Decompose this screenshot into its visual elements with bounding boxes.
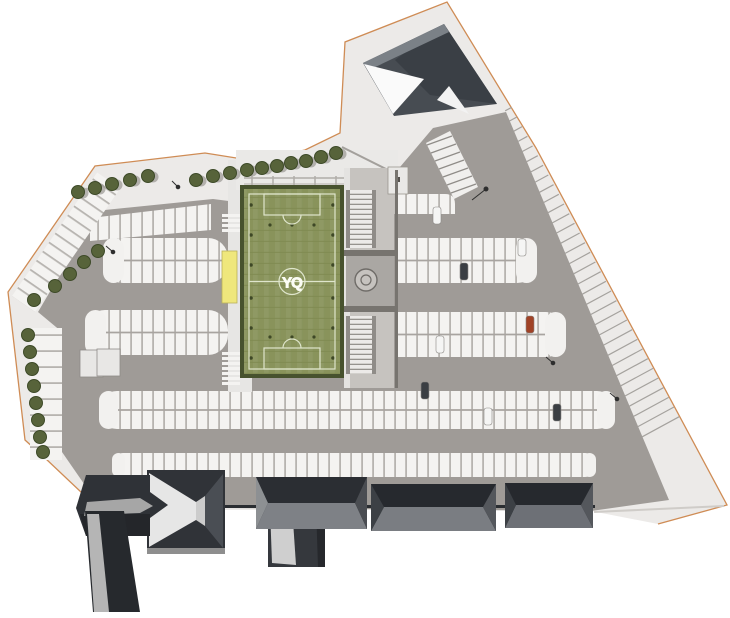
svg-text:YQ: YQ — [282, 275, 303, 292]
